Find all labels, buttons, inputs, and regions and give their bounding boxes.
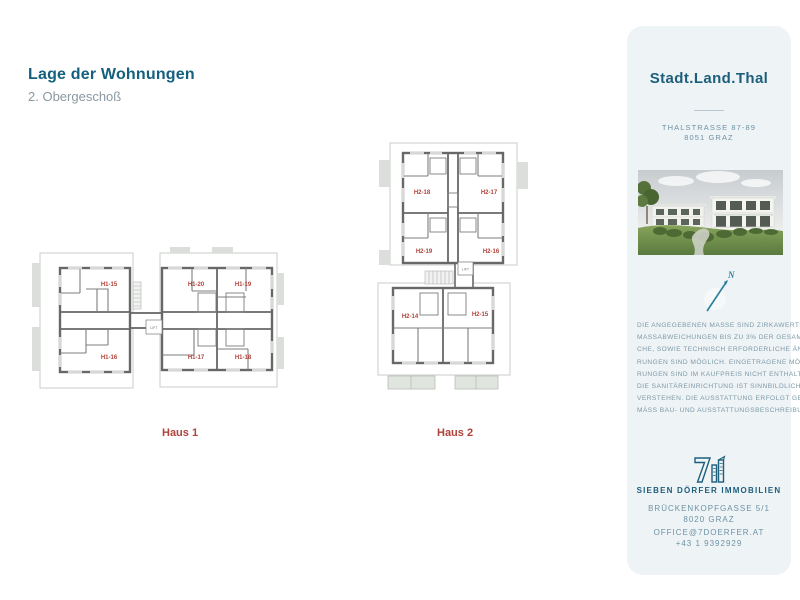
unit-label-h1-20: H1-20 [188, 282, 205, 288]
disclaimer-line: DIE SANITÄREINRICHTUNG IST SINNBILDLICH … [637, 381, 781, 393]
unit-label-h1-15: H1-15 [101, 282, 118, 288]
right-building [710, 196, 776, 232]
disclaimer-line: RUNGEN SIND MÖGLICH. EINGETRAGENE MÖBLIE… [637, 357, 781, 369]
haus2-stairs [425, 271, 453, 284]
unit-label-h2-14: H2-14 [402, 314, 419, 320]
unit-label-h2-18: H2-18 [414, 190, 431, 196]
disclaimer-line: VERSTEHEN. DIE AUSSTATTUNG ERFOLGT GE- [637, 393, 781, 405]
company-logo [692, 452, 726, 490]
unit-label-h2-16: H2-16 [483, 249, 500, 255]
haus1-lift-label: LIFT [150, 326, 157, 330]
haus1-lift: LIFT [146, 320, 162, 334]
haus1-caption: Haus 1 [162, 427, 198, 439]
north-arrow: N [701, 268, 737, 316]
brochure-page: Lage der Wohnungen 2. Obergeschoß [0, 0, 800, 600]
haus2-caption: Haus 2 [437, 427, 473, 439]
haus1-floor-plan: LIFT H1-15 H1-20 H1-19 H1-16 H1-17 H1-18 [28, 245, 312, 395]
page-title: Lage der Wohnungen [28, 66, 195, 84]
disclaimer-line: MASSABWEICHUNGEN BIS ZU 3% DER GESAMTFLÄ… [637, 332, 781, 344]
disclaimer-line: CHE, SOWIE TECHNISCH ERFORDERLICHE ÄNDE- [637, 344, 781, 356]
disclaimer-line: DIE ANGEGEBENEN MASSE SIND ZIRKAWERTE. [637, 320, 781, 332]
disclaimer-text: DIE ANGEGEBENEN MASSE SIND ZIRKAWERTE. M… [637, 320, 781, 418]
building-rendering-image [638, 170, 783, 255]
disclaimer-line: RUNGEN SIND IM KAUFPREIS NICHT ENTHALTEN… [637, 369, 781, 381]
company-contact: OFFICE@7DOERFER.AT +43 1 9392929 [627, 528, 791, 549]
company-name: SIEBEN DÖRFER IMMOBILIEN [627, 486, 791, 495]
brand-title: Stadt.Land.Thal [627, 70, 791, 87]
disclaimer-line: MÄSS BAU- UND AUSSTATTUNGSBESCHREIBUNG. [637, 405, 781, 417]
left-building [650, 204, 706, 227]
company-address-line1: BRÜCKENKOPFGASSE 5/1 [627, 504, 791, 515]
company-email: OFFICE@7DOERFER.AT [627, 528, 791, 539]
project-address-line1: THALSTRASSE 87-89 [627, 123, 791, 133]
brand-divider [694, 110, 724, 111]
page-subtitle: 2. Obergeschoß [28, 89, 121, 104]
unit-label-h2-19: H2-19 [416, 249, 433, 255]
company-phone: +43 1 9392929 [627, 539, 791, 550]
unit-label-h2-17: H2-17 [481, 190, 498, 196]
project-address-line2: 8051 GRAZ [627, 133, 791, 143]
company-address-line2: 8020 GRAZ [627, 515, 791, 526]
unit-label-h1-19: H1-19 [235, 282, 252, 288]
company-address: BRÜCKENKOPFGASSE 5/1 8020 GRAZ [627, 504, 791, 525]
haus2-floor-plan: LIFT H2-18 H2-17 H2-19 H2-16 H2-14 H2-15 [370, 138, 535, 398]
haus2-garden-balconies [388, 376, 498, 389]
north-arrow-label: N [727, 270, 735, 280]
unit-label-h1-18: H1-18 [235, 355, 252, 361]
haus2-lift-label: LIFT [462, 268, 469, 272]
unit-label-h2-15: H2-15 [472, 312, 489, 318]
haus1-stairs [133, 282, 141, 309]
sidebar-panel: Stadt.Land.Thal THALSTRASSE 87-89 8051 G… [627, 26, 791, 575]
haus2-lift: LIFT [458, 262, 473, 275]
unit-label-h1-16: H1-16 [101, 355, 118, 361]
unit-label-h1-17: H1-17 [188, 355, 205, 361]
project-address: THALSTRASSE 87-89 8051 GRAZ [627, 123, 791, 143]
